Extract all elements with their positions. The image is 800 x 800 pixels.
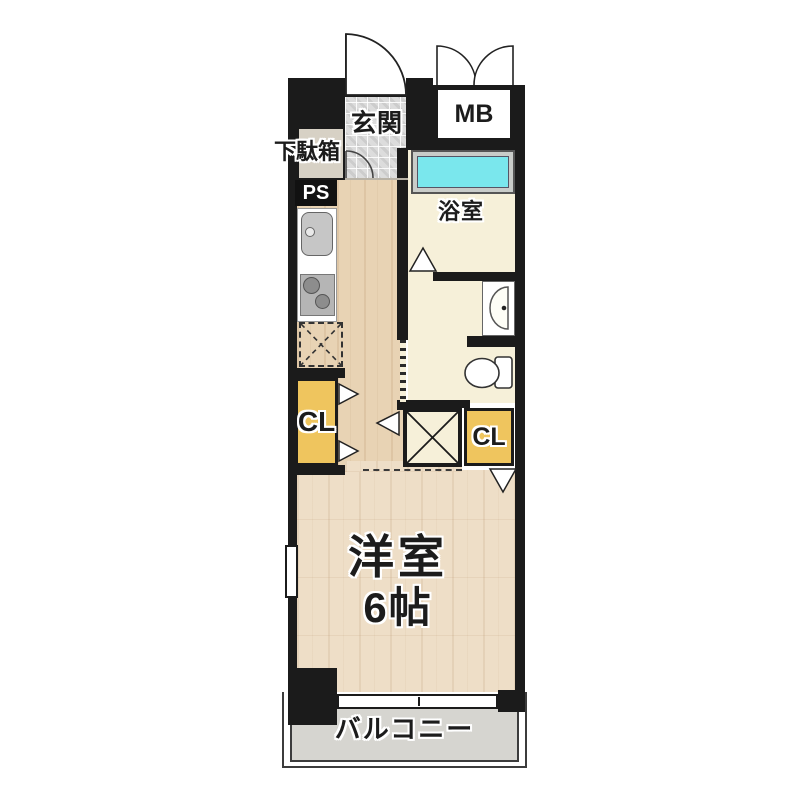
pipe-space-label: PS (303, 183, 330, 203)
wall (467, 336, 515, 347)
window-icon (285, 545, 298, 598)
washbasin-icon (482, 281, 515, 336)
folding-door-icon (408, 246, 438, 273)
wall (397, 400, 470, 408)
wall (433, 272, 515, 281)
wall (288, 668, 337, 725)
burner (303, 277, 320, 294)
room-size-label: 6帖 (363, 587, 432, 629)
bathtub-water (417, 156, 509, 188)
washing-machine-space-icon (403, 408, 462, 467)
accordion-door-icon (400, 340, 406, 402)
wall (406, 78, 433, 148)
floor-plan: バルコニー PS MB (0, 0, 800, 800)
wall (288, 78, 345, 127)
wall (288, 465, 345, 475)
shoe-cabinet-label: 下駄箱 (274, 141, 340, 163)
refrigerator-space-icon (299, 322, 343, 367)
wall (498, 690, 525, 712)
entrance-door-icon (344, 30, 407, 96)
closet-right: CL (464, 408, 514, 466)
folding-door-icon (337, 439, 361, 463)
closet-left-label: CL (298, 408, 335, 436)
wall (288, 368, 345, 378)
folding-door-icon (337, 382, 361, 406)
sliding-window-icon (337, 694, 498, 709)
stove-icon (300, 274, 335, 316)
kitchen-sink-icon (301, 212, 333, 256)
meter-box-doors-icon (435, 40, 515, 86)
wall (408, 142, 515, 150)
folding-door-icon (488, 467, 518, 494)
sliding-window-divider (418, 697, 420, 706)
meter-box: MB (433, 85, 515, 143)
closet-left: CL (295, 378, 338, 466)
door-swing-icon (344, 149, 375, 180)
folding-door-icon (375, 410, 401, 437)
pipe-space: PS (295, 180, 337, 206)
bathroom-label: 浴室 (438, 201, 484, 223)
toilet-icon (462, 350, 517, 394)
closet-right-label: CL (472, 425, 505, 450)
room-name-label: 洋室 (348, 534, 448, 580)
faucet-dot (305, 227, 315, 237)
meter-box-label: MB (455, 100, 494, 129)
entrance-label: 玄関 (351, 112, 403, 137)
balcony-label: バルコニー (335, 716, 474, 742)
wall (397, 148, 408, 340)
burner (315, 294, 330, 309)
bathtub-icon (411, 150, 515, 194)
room-boundary-dashed (363, 469, 462, 471)
